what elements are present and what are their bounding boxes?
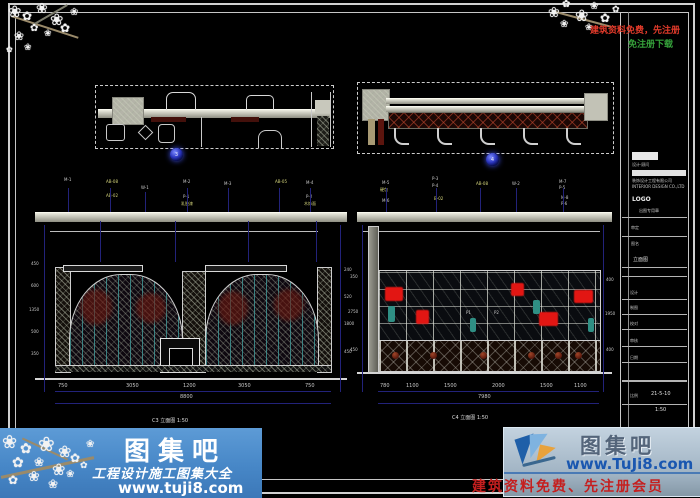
wall-block bbox=[112, 97, 144, 125]
plum-blossom-icon: ❀ bbox=[34, 456, 44, 468]
elevation-right-ceiling bbox=[357, 212, 612, 222]
plum-blossom-icon: ❀ bbox=[52, 462, 65, 478]
leader-line bbox=[480, 188, 481, 212]
plum-blossom-icon: ❀ bbox=[86, 440, 94, 450]
plum-blossom-icon: ✿ bbox=[22, 10, 32, 22]
material-label: M-7 bbox=[559, 180, 566, 184]
dim-total-label: 8800 bbox=[180, 395, 193, 400]
fixture-hanger-icon bbox=[437, 128, 452, 145]
cabinet-knob bbox=[528, 352, 535, 359]
fixture-hanger-icon bbox=[480, 128, 495, 145]
red-decor-object bbox=[539, 312, 558, 326]
vdim-label: 520 bbox=[344, 295, 352, 299]
partition-line bbox=[201, 117, 202, 147]
detail-bubble-right: 4 bbox=[486, 153, 499, 166]
leader-line bbox=[145, 192, 146, 212]
drawing-label: 图名 bbox=[631, 242, 639, 246]
titleblock-rule bbox=[622, 236, 687, 237]
dim-label: 750 bbox=[305, 384, 315, 389]
watermark-note-red: 建筑资料免费，先注册 bbox=[590, 27, 680, 36]
cell-label: P2 bbox=[494, 311, 499, 315]
grid-line bbox=[248, 221, 249, 262]
dim-label: 1500 bbox=[540, 384, 553, 389]
red-decor-object bbox=[574, 290, 593, 303]
vdim-line bbox=[340, 225, 341, 392]
plum-blossom-icon: ❀ bbox=[44, 30, 52, 39]
plum-blossom-icon: ❀ bbox=[14, 30, 24, 42]
grid-line bbox=[100, 221, 101, 262]
material-label: P-6 bbox=[561, 202, 567, 206]
cabinet-knob bbox=[430, 352, 437, 359]
material-label: M-2 bbox=[183, 180, 190, 184]
lamp-profile-icon bbox=[246, 95, 274, 110]
plum-blossom-icon: ✿ bbox=[60, 22, 70, 34]
vdim-label: 1350 bbox=[29, 308, 39, 312]
teal-decor-object bbox=[388, 306, 395, 322]
elevation-left-ceiling bbox=[35, 212, 347, 222]
dim-label: 1100 bbox=[406, 384, 419, 389]
firm-caption: 设计·顾问 bbox=[632, 163, 649, 167]
cabinet-knob bbox=[575, 352, 582, 359]
fixture-hanger-icon bbox=[523, 128, 538, 145]
fixture-hanger-icon bbox=[566, 128, 581, 145]
plum-blossom-icon: ✿ bbox=[12, 456, 24, 470]
plum-blossom-icon: ✿ bbox=[80, 462, 88, 471]
vdim-label: 450 bbox=[31, 262, 39, 266]
wall-block bbox=[362, 89, 390, 121]
titleblock-rule bbox=[622, 299, 687, 300]
plum-blossom-icon: ❀ bbox=[8, 4, 21, 20]
watermark-banner-left: ❀ ✿ ❀ ❀ ✿ ❀ ❀ ✿ ❀ ✿ ❀ ❀ ✿ ❀ 图集吧 工程设计施工图集… bbox=[0, 428, 262, 498]
vdim-label: 2750 bbox=[348, 310, 358, 314]
leader-line bbox=[68, 188, 69, 212]
cad-drawing-sheet: 3 4 M-1 AB-08 AB-02 W-1 M-2 P-1 乳胶漆 M-3 … bbox=[0, 0, 700, 498]
titleblock-divider bbox=[620, 12, 621, 478]
cornice-strip bbox=[205, 265, 287, 272]
teal-decor-object bbox=[588, 318, 594, 332]
chair-outline-icon bbox=[106, 124, 125, 141]
material-label: AB-05 bbox=[275, 180, 287, 184]
column-hatch bbox=[317, 116, 329, 146]
cabinet-knob bbox=[555, 352, 562, 359]
elevation-title: C3 立面图 1:50 bbox=[152, 419, 188, 424]
floor-line bbox=[357, 372, 612, 374]
vdim-line bbox=[44, 225, 45, 392]
plum-blossom-icon: ✿ bbox=[600, 12, 610, 24]
plum-blossom-icon: ❀ bbox=[48, 478, 58, 490]
red-decor-object bbox=[385, 287, 403, 301]
plum-blossom-icon: ❀ bbox=[28, 470, 40, 484]
vdim-line bbox=[603, 225, 604, 392]
dim-label: 2000 bbox=[492, 384, 505, 389]
column-line bbox=[330, 92, 331, 147]
material-label: M-3 bbox=[224, 182, 231, 186]
dim-label: 3050 bbox=[238, 384, 251, 389]
leader-line bbox=[279, 188, 280, 212]
titleblock-rule bbox=[622, 346, 687, 347]
arched-opening-2 bbox=[205, 274, 319, 372]
light-cove bbox=[231, 117, 259, 122]
grid-line bbox=[316, 221, 317, 262]
plum-blossom-icon: ❀ bbox=[66, 470, 74, 480]
site-url: www.TuJi8.com bbox=[566, 455, 693, 473]
vdim-label: 450 bbox=[350, 348, 358, 352]
cabinet-knob bbox=[480, 352, 487, 359]
firm-logo-bar bbox=[632, 152, 658, 160]
plum-blossom-icon: ❀ bbox=[575, 8, 588, 24]
cornice-strip bbox=[63, 265, 143, 272]
finish-strip-red bbox=[378, 119, 384, 145]
row-label: 审核 bbox=[630, 339, 638, 343]
dimension-chain bbox=[378, 391, 599, 392]
leader-line bbox=[110, 188, 111, 212]
cabinet-knob bbox=[392, 352, 399, 359]
red-decor-object bbox=[511, 283, 524, 296]
titleblock-rule bbox=[622, 217, 687, 218]
material-label: P-3 bbox=[432, 177, 438, 181]
date-value: 21-5-10 bbox=[651, 392, 671, 397]
titleblock-rule bbox=[622, 362, 687, 363]
material-label: M-5 bbox=[382, 181, 389, 185]
titleblock-rule bbox=[622, 276, 687, 277]
teal-decor-object bbox=[533, 300, 540, 314]
plum-blossom-icon: ❀ bbox=[38, 434, 55, 454]
firm-name-bar bbox=[632, 170, 686, 176]
ceiling-beam-upper bbox=[386, 98, 594, 104]
teal-decor-object bbox=[470, 318, 476, 332]
vdim-label: 600 bbox=[31, 284, 39, 288]
material-label: M-4 bbox=[306, 181, 313, 185]
watermark-note-green: 免注册下载 bbox=[628, 41, 673, 50]
display-shelf-wall bbox=[378, 270, 601, 342]
material-label: AB-08 bbox=[106, 180, 118, 184]
dimension-chain bbox=[55, 403, 331, 404]
diamond-decor-icon bbox=[138, 125, 154, 141]
logo-text: LOGO bbox=[632, 197, 651, 203]
vdim-label: 240 bbox=[344, 268, 352, 272]
dimension-chain bbox=[55, 391, 331, 392]
dim-label: 750 bbox=[58, 384, 68, 389]
material-label: AB-08 bbox=[476, 182, 488, 186]
company-line: INTERIOR DESIGN CO.,LTD bbox=[632, 185, 685, 189]
plum-blossom-icon: ❀ bbox=[24, 44, 32, 53]
plum-blossom-icon: ✿ bbox=[30, 24, 38, 34]
pier-right bbox=[317, 267, 332, 373]
soffit-line bbox=[362, 231, 600, 232]
plum-blossom-icon: ❀ bbox=[548, 6, 560, 20]
detail-bubble-number: 3 bbox=[175, 152, 178, 158]
titleblock-rule bbox=[622, 267, 687, 268]
section-detail-right bbox=[357, 82, 614, 154]
approve-label: 审定 bbox=[631, 226, 639, 230]
titleblock-rule bbox=[622, 380, 687, 382]
leader-line bbox=[436, 188, 437, 212]
vdim-label: 500 bbox=[31, 330, 39, 334]
banner-divider bbox=[504, 472, 700, 474]
elevation-title: C4 立面图 1:50 bbox=[452, 416, 488, 421]
vdim-label: 350 bbox=[31, 352, 39, 356]
plum-blossom-icon: ✿ bbox=[20, 442, 32, 456]
detail-bubble-number: 4 bbox=[491, 157, 494, 163]
base-cabinet-row bbox=[378, 340, 601, 372]
material-label: W-2 bbox=[512, 182, 520, 186]
chair-outline-icon bbox=[158, 124, 175, 143]
plum-blossom-icon: ❀ bbox=[560, 20, 568, 30]
plum-blossom-icon: ❀ bbox=[36, 2, 48, 16]
light-cove bbox=[151, 117, 186, 122]
vdim-label: 1800 bbox=[344, 322, 354, 326]
scale-value: 1:50 bbox=[655, 408, 666, 413]
column-line bbox=[311, 92, 312, 147]
dim-total-label: 7980 bbox=[478, 395, 491, 400]
company-line: 装饰设计工程有限公司 bbox=[632, 179, 672, 183]
leader-line bbox=[386, 188, 387, 212]
material-label: M-1 bbox=[64, 178, 71, 182]
plum-blossom-icon: ✿ bbox=[6, 46, 13, 54]
elevation-left-wall bbox=[55, 262, 331, 372]
plum-blossom-icon: ✿ bbox=[562, 0, 570, 10]
plum-blossom-icon: ✿ bbox=[70, 452, 80, 464]
dimension-chain bbox=[378, 403, 599, 404]
site-logo-icon bbox=[516, 432, 562, 470]
titleblock-rule bbox=[622, 404, 687, 405]
row-label: 校对 bbox=[630, 322, 638, 326]
dim-label: 780 bbox=[380, 384, 390, 389]
row-label: 制图 bbox=[630, 306, 638, 310]
drawing-name: 立面图 bbox=[633, 258, 648, 263]
red-decor-object bbox=[416, 310, 429, 324]
leader-line bbox=[516, 188, 517, 212]
leader-line bbox=[563, 188, 564, 212]
vdim-label: 400 bbox=[606, 348, 614, 352]
scale-label: 比例 bbox=[630, 394, 638, 398]
titleblock-rule bbox=[622, 329, 687, 330]
row-label: 设计 bbox=[630, 291, 638, 295]
dim-label: 3050 bbox=[126, 384, 139, 389]
column-block bbox=[584, 93, 608, 121]
plum-blossom-icon: ❀ bbox=[70, 8, 78, 18]
plum-blossom-icon: ❀ bbox=[2, 434, 17, 452]
vdim-label: 350 bbox=[350, 275, 358, 279]
section-detail-left bbox=[95, 85, 334, 149]
cell-label: P1 bbox=[466, 311, 471, 315]
plum-blossom-icon: ❀ bbox=[590, 2, 598, 12]
material-label: AB-02 bbox=[106, 194, 118, 198]
dim-label: 1100 bbox=[574, 384, 587, 389]
dim-label: 1200 bbox=[183, 384, 196, 389]
watermark-note-red: 建筑资料免费、先注册会员 bbox=[472, 476, 664, 496]
fixture-hanger-icon bbox=[394, 128, 409, 145]
soffit-line bbox=[50, 231, 318, 232]
vdim-label: 1950 bbox=[605, 312, 615, 316]
vdim-label: 400 bbox=[606, 278, 614, 282]
material-label: W-1 bbox=[141, 186, 149, 190]
dim-label: 1500 bbox=[444, 384, 457, 389]
vdim-line bbox=[362, 225, 363, 392]
lamp-profile-icon bbox=[166, 92, 196, 110]
detail-bubble-left: 3 bbox=[170, 148, 183, 161]
title-block: 设计·顾问 装饰设计工程有限公司 INTERIOR DESIGN CO.,LTD… bbox=[629, 12, 687, 478]
truss-strip bbox=[388, 112, 588, 129]
floor-line bbox=[35, 378, 347, 380]
leader-line bbox=[187, 188, 188, 212]
leader-line bbox=[310, 188, 311, 212]
titleblock-rule bbox=[622, 314, 687, 315]
leader-line bbox=[228, 188, 229, 212]
baseboard bbox=[55, 365, 331, 372]
site-url: www.tuji8.com bbox=[118, 479, 243, 497]
stamp-note: 出图专用章 bbox=[639, 209, 659, 213]
plum-blossom-icon: ✿ bbox=[8, 474, 18, 486]
plum-blossom-icon: ✿ bbox=[612, 6, 620, 15]
date-label: 日期 bbox=[630, 356, 638, 360]
grid-line bbox=[175, 221, 176, 262]
arch-profile bbox=[258, 130, 282, 148]
finish-strip-wood bbox=[368, 119, 375, 145]
column-cap bbox=[315, 100, 331, 113]
